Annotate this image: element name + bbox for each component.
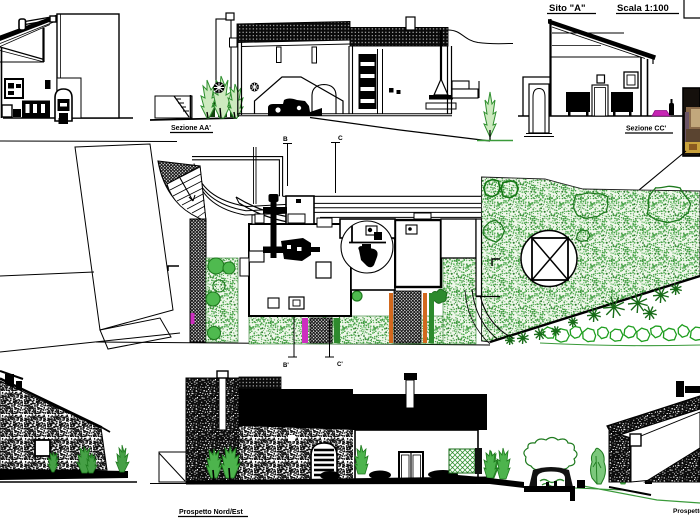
svg-text:Sito "A": Sito "A" <box>549 3 585 14</box>
svg-text:Sezione CC': Sezione CC' <box>626 126 667 133</box>
svg-text:B': B' <box>283 363 289 369</box>
svg-text:C: C <box>338 135 343 142</box>
svg-text:B: B <box>283 136 288 143</box>
svg-text:Prospetto Nord/Est: Prospetto Nord/Est <box>179 509 243 516</box>
svg-text:Sezione AA': Sezione AA' <box>171 125 211 132</box>
svg-text:C': C' <box>337 362 343 368</box>
svg-text:Prospetto Sud: Prospetto Sud <box>673 508 700 515</box>
svg-text:Scala 1:100: Scala 1:100 <box>617 3 669 14</box>
